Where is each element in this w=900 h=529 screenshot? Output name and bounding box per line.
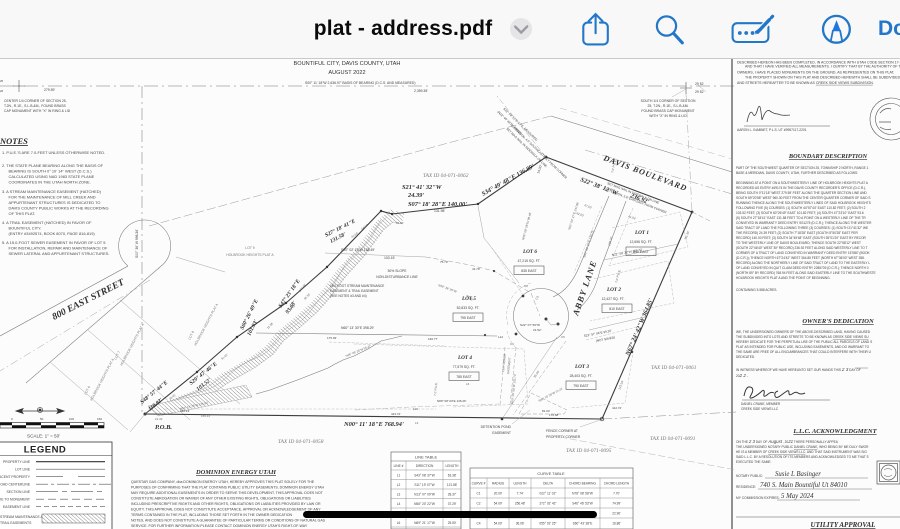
svg-text:3. A STREAM MAINTENANCE EASE: 3. A STREAM MAINTENANCE EASEMENT (HATCHE… <box>2 189 102 194</box>
svg-text:74.99': 74.99' <box>612 502 621 506</box>
svg-text:77,579 SQ. FT.: 77,579 SQ. FT. <box>453 365 476 369</box>
svg-text:1. P.U.E.'S ARE 7.0-FEET UNL: 1. P.U.E.'S ARE 7.0-FEET UNLESS OTHERWIS… <box>2 150 105 155</box>
svg-text:N13° 07' 09"W: N13° 07' 09"W <box>414 493 435 497</box>
svg-text:LOT 6: LOT 6 <box>522 249 537 255</box>
svg-text:L3: L3 <box>415 421 419 425</box>
svg-text:C8: C8 <box>524 284 528 288</box>
svg-text:DAVIS COUNTY PUBLIC WORKS AT T: DAVIS COUNTY PUBLIC WORKS AT THE RECORDI… <box>9 206 109 211</box>
svg-text:CAP MONUMENT WITH "X" IN RING: CAP MONUMENT WITH "X" IN RING & LID <box>4 109 71 113</box>
svg-text:54.00': 54.00' <box>494 522 503 526</box>
svg-text:COORDINATES IN THE UTAH NORTH: COORDINATES IN THE UTAH NORTH ZONE. <box>9 180 91 185</box>
svg-text:QUESTAR GAS COMPANY, dba DOMIN: QUESTAR GAS COMPANY, dba DOMINION ENERGY… <box>131 480 315 484</box>
svg-text:121.58': 121.58' <box>447 483 458 487</box>
svg-text:CHORD BEARING: CHORD BEARING <box>569 482 596 486</box>
svg-text:AND THAT I HAVE VERIFIED ALL M: AND THAT I HAVE VERIFIED ALL MEASUREMENT… <box>745 65 900 69</box>
svg-text:S11° 19' 07"W: S11° 19' 07"W <box>414 483 434 487</box>
svg-text:CORNER OF A TRACT OF LAND CONV: CORNER OF A TRACT OF LAND CONVEYED IN WA… <box>736 251 871 255</box>
svg-text:S00° 36' W 996.36': S00° 36' W 996.36' <box>135 229 139 258</box>
svg-text:7.74': 7.74' <box>517 492 524 496</box>
svg-text:5. A 15.0-FOOT SEWER EASEMEN: 5. A 15.0-FOOT SEWER EASEMENT IN FAVOR O… <box>2 240 106 245</box>
svg-text:21.41': 21.41' <box>155 417 163 421</box>
svg-text:NON-DISTURBANCE LINE: NON-DISTURBANCE LINE <box>376 275 418 279</box>
svg-text:S07° 18' 28"E 140.00': S07° 18' 28"E 140.00' <box>408 201 467 208</box>
svg-text:52,833 SQ. FT.: 52,833 SQ. FT. <box>457 306 480 310</box>
svg-text:L6: L6 <box>466 382 470 386</box>
svg-text:LOT LINE: LOT LINE <box>15 468 31 472</box>
svg-text:OF LAND CONVEYED IN QUIT CLAIM: OF LAND CONVEYED IN QUIT CLAIM DEED ENTR… <box>736 266 869 270</box>
svg-text:L4: L4 <box>397 502 401 506</box>
svg-text:INCLUDING PRESCRIPTIVE RIGHTS: INCLUDING PRESCRIPTIVE RIGHTS AND OTHER … <box>131 502 321 506</box>
svg-text:TAX ID 04-071-0091: TAX ID 04-071-0091 <box>650 436 696 442</box>
svg-text:54.00': 54.00' <box>494 502 503 506</box>
svg-text:RESIDENCE:: RESIDENCE: <box>736 485 756 489</box>
svg-text:790 EAST: 790 EAST <box>573 384 588 388</box>
svg-text:DEDICATED.: DEDICATED. <box>736 355 755 359</box>
svg-text:AUGUST 2022: AUGUST 2022 <box>328 70 365 76</box>
svg-text:L6: L6 <box>397 521 401 525</box>
svg-text:HE IS A MEMBER OF CREEK SIDE V: HE IS A MEMBER OF CREEK SIDE VIEWS LLC, … <box>736 450 867 454</box>
svg-text:81.04': 81.04' <box>542 409 551 413</box>
svg-text:PLAT AS INTENDED FOR PUBLIC US: PLAT AS INTENDED FOR PUBLIC USE, INCLUDI… <box>736 345 870 349</box>
svg-text:840 EAST: 840 EAST <box>633 250 648 254</box>
svg-text:DOMINION ENERGY UTAH: DOMINION ENERGY UTAH <box>195 469 277 476</box>
svg-text:FOR THE MAINTENANCE OF MILL CR: FOR THE MAINTENANCE OF MILL CREEK AND <box>9 195 96 200</box>
svg-text:DIRECTION: DIRECTION <box>416 464 434 468</box>
svg-text:150: 150 <box>97 417 102 421</box>
svg-text:156.13': 156.13' <box>180 409 190 413</box>
svg-text:CENTER 1/4 CORNER OF SECTION 2: CENTER 1/4 CORNER OF SECTION 25, <box>4 99 67 103</box>
svg-text:RECORD) ALONG THE NORTHERLY LI: RECORD) ALONG THE NORTHERLY LINE OF SAID… <box>736 261 870 265</box>
svg-text:EXECUTED THE SAME.: EXECUTED THE SAME. <box>736 460 771 464</box>
svg-text:(ENTRY #3492574, BOOK 8070, PA: (ENTRY #3492574, BOOK 8070, PAGE 816-819… <box>9 231 96 236</box>
svg-text:175.93': 175.93' <box>327 336 337 340</box>
svg-text:30% SLOPE: 30% SLOPE <box>387 269 407 273</box>
svg-text:MAY REQUIRE ADDITIONAL EASEMEN: MAY REQUIRE ADDITIONAL EASEMENTS IN ORDE… <box>131 491 324 495</box>
svg-text:N89° 08' 03"E 136.26': N89° 08' 03"E 136.26' <box>437 399 467 403</box>
svg-text:LOT 2: LOT 2 <box>606 287 621 293</box>
svg-text:TAX ID 04-071-0095: TAX ID 04-071-0095 <box>566 448 612 454</box>
svg-text:N56° 20' 22"W: N56° 20' 22"W <box>414 502 435 506</box>
svg-text:EQUITY. THIS APPROVAL DOES NOT: EQUITY. THIS APPROVAL DOES NOT CONSTITUT… <box>131 508 321 512</box>
svg-text:2. THE STATE PLANE BEARING A: 2. THE STATE PLANE BEARING ALONG THE BAS… <box>2 163 104 168</box>
svg-text:7.70': 7.70' <box>613 492 620 496</box>
svg-text:785 EAST: 785 EAST <box>456 375 471 379</box>
svg-text:LOT 1: LOT 1 <box>634 230 649 236</box>
svg-text:ROAD CENTERLINE: ROAD CENTERLINE <box>0 483 31 487</box>
svg-text:RECORDED AS ENTRY #49174 IN TH: RECORDED AS ENTRY #49174 IN THE DAVIS CO… <box>736 186 866 190</box>
svg-text:26: 26 <box>0 89 4 93</box>
svg-text:413.72': 413.72' <box>391 412 401 416</box>
svg-text:26.00': 26.00' <box>396 221 404 225</box>
svg-text:C5: C5 <box>561 335 565 339</box>
svg-text:THE RECORD) 24.39 FEET; (2) SO: THE RECORD) 24.39 FEET; (2) SOUTH 7°18'2… <box>736 231 858 235</box>
svg-text:(SOUTH 22°46'40" WEST BY RECOR: (SOUTH 22°46'40" WEST BY RECORD) 236.92 … <box>736 246 868 250</box>
svg-text:AND STREETS HEREAFTER TO BE KN: AND STREETS HEREAFTER TO BE KNOWN AS CRE… <box>737 81 874 85</box>
svg-text:SCALE: 1" = 50': SCALE: 1" = 50' <box>27 434 60 439</box>
svg-text:THE UNDERSIGNED NOTARY PUBLIC: THE UNDERSIGNED NOTARY PUBLIC DANIEL CRA… <box>736 445 869 449</box>
svg-text:DETENTION POND: DETENTION POND <box>481 425 512 429</box>
svg-text:UTILITY APPROVAL: UTILITY APPROVAL <box>811 521 876 529</box>
svg-text:TERMS CONTAINED IN THE PLAT, I: TERMS CONTAINED IN THE PLAT, INCLUDING T… <box>131 513 293 517</box>
svg-text:S60° 43' 38"E: S60° 43' 38"E <box>573 522 593 526</box>
svg-text:HOLBROOK HEIGHTS PLAT A: HOLBROOK HEIGHTS PLAT A <box>226 253 274 257</box>
svg-text:HOLBROOK HEIGHTS PLAT A AND TH: HOLBROOK HEIGHTS PLAT A AND THE POINT OF… <box>736 276 831 280</box>
svg-text:S43° 08' 37"W: S43° 08' 37"W <box>414 474 435 478</box>
svg-text:25: 25 <box>0 79 4 83</box>
svg-text:29 52: 29 52 <box>695 82 704 86</box>
svg-text:S22° 07' 56"W: S22° 07' 56"W <box>520 323 540 327</box>
svg-text:L10: L10 <box>413 407 418 411</box>
svg-text:SOUTH 1/4 CORNER OF SECTION: SOUTH 1/4 CORNER OF SECTION <box>641 99 696 103</box>
svg-text:37.29': 37.29' <box>448 502 457 506</box>
svg-text:25, T.2N., R.1E., S.L.B.&M.: 25, T.2N., R.1E., S.L.B.&M. <box>647 104 688 108</box>
svg-text:SERVICE. FOR FURTHER INFORMATI: SERVICE. FOR FURTHER INFORMATION PLEASE … <box>131 524 308 528</box>
svg-text:740 S. Main Bountiful Ut 84010: 740 S. Main Bountiful Ut 84010 <box>760 482 848 489</box>
svg-text:160.77': 160.77' <box>428 337 438 341</box>
svg-text:055° 02' 25": 055° 02' 25" <box>539 522 556 526</box>
svg-text:100: 100 <box>69 417 74 421</box>
svg-text:C4: C4 <box>510 342 514 346</box>
svg-text:835 EAST: 835 EAST <box>521 269 536 273</box>
svg-text:L.L.C. ACKNOWLEDGMENT: L.L.C. ACKNOWLEDGMENT <box>792 428 877 435</box>
svg-text:279.59': 279.59' <box>44 88 55 92</box>
svg-text:STREAM MAINTENANCE AND: STREAM MAINTENANCE AND <box>0 515 48 519</box>
svg-text:16.86': 16.86' <box>612 522 621 526</box>
svg-text:(NORTH 89° BY RECORD) 768.94 F: (NORTH 89° BY RECORD) 768.94 FEET ALONG … <box>736 271 876 275</box>
svg-text:412.72': 412.72' <box>612 406 622 410</box>
svg-text:SAID TRACT OF LAND THE FOLLOWI: SAID TRACT OF LAND THE FOLLOWING THREE (… <box>736 226 868 230</box>
svg-text:810 EAST: 810 EAST <box>609 307 624 311</box>
svg-text:CONSTITUTE ABROGATION OR WAIVE: CONSTITUTE ABROGATION OR WAIVER OF ANY O… <box>131 497 311 501</box>
svg-text:28,403 SQ. FT.: 28,403 SQ. FT. <box>570 374 593 378</box>
svg-text:22.90': 22.90' <box>612 512 621 516</box>
svg-text:36.06': 36.06' <box>516 522 525 526</box>
svg-text:LOT 9: LOT 9 <box>245 246 254 250</box>
svg-text:NOTES: NOTES <box>0 136 28 146</box>
svg-text:S46° 46' 53"W: S46° 46' 53"W <box>572 502 593 506</box>
svg-text:LOT 4: LOT 4 <box>457 355 472 361</box>
svg-text:IN WITNESS WHEREOF WE HAVE HER: IN WITNESS WHEREOF WE HAVE HEREUNTO SET … <box>736 367 861 372</box>
svg-text:NOTARY PUBLIC:: NOTARY PUBLIC: <box>736 474 763 478</box>
svg-text:OWNERS, I HAVE PLACED MONUMENT: OWNERS, I HAVE PLACED MONUMENTS ON THE G… <box>737 71 895 75</box>
svg-text:CALCULATED USING NAD 1983 STAT: CALCULATED USING NAD 1983 STATE PLANE <box>9 174 95 179</box>
svg-text:L1: L1 <box>397 474 401 478</box>
svg-text:(5) SOUTH 27°18'41" EAST 131.5: (5) SOUTH 27°18'41" EAST 131.58 FEET TO … <box>736 216 866 220</box>
svg-text:FOLLOWING FIVE (5) COURSES: (1: FOLLOWING FIVE (5) COURSES: (1) SOUTH 44… <box>736 206 866 210</box>
svg-text:AARON L. INABNET, P.L.S. UT #: AARON L. INABNET, P.L.S. UT #9957117-220… <box>737 128 807 132</box>
svg-text:TRAIL EASEMENTS: TRAIL EASEMENTS <box>0 521 32 525</box>
svg-text:EASEMENT LINE: EASEMENT LINE <box>3 505 31 509</box>
svg-text:C1: C1 <box>476 492 480 496</box>
svg-text:SECTION LINE: SECTION LINE <box>6 490 30 494</box>
svg-text:CURVE #: CURVE # <box>472 482 486 486</box>
svg-text:PROPERTY CORNER: PROPERTY CORNER <box>546 435 581 439</box>
svg-text:N60° 13' 30"E 398.29': N60° 13' 30"E 398.29' <box>341 326 374 330</box>
svg-text:TO THE WESTERLY LINE OF DAVIS: TO THE WESTERLY LINE OF DAVIS BOULEVARD;… <box>736 241 861 245</box>
svg-text:S21° 41' 32"W: S21° 41' 32"W <box>402 184 443 191</box>
svg-text:103.52 FEET; (3) SOUTH 60°26'4: 103.52 FEET; (3) SOUTH 60°26'49" EAST 10… <box>736 211 864 215</box>
svg-text:SAID L.L.C. BY A RESOLUTION OF: SAID L.L.C. BY A RESOLUTION OF ITS MEMBE… <box>736 455 869 459</box>
svg-text:CREEK SIDE VIEWS LLC: CREEK SIDE VIEWS LLC <box>741 407 779 411</box>
svg-text:APPURTENANT STRUCTURES IS DEDI: APPURTENANT STRUCTURES IS DEDICATED TO <box>9 200 101 205</box>
svg-text:LOT 3: LOT 3 <box>574 364 589 370</box>
svg-text:50: 50 <box>40 417 44 421</box>
svg-text:BOUNTIFUL CITY, DAVIS COUNTY,: BOUNTIFUL CITY, DAVIS COUNTY, UTAH <box>294 61 401 67</box>
svg-text:(SEE NOTES #3 AND #4): (SEE NOTES #3 AND #4) <box>330 294 367 298</box>
svg-text:THE PROPERTY SHOWN ON THIS PLA: THE PROPERTY SHOWN ON THIS PLAT AND DESC… <box>745 76 900 80</box>
svg-text:N69° 21' 17"W: N69° 21' 17"W <box>414 521 435 525</box>
svg-text:CURVE TABLE: CURVE TABLE <box>537 471 565 476</box>
svg-text:EASEMENT: EASEMENT <box>492 431 511 435</box>
svg-text:L3: L3 <box>397 493 401 497</box>
svg-text:ON THE 2 3 DAY OF August: ON THE 2 3 DAY OF August , 2021 THERE PE… <box>736 439 839 444</box>
svg-text:12,427 SQ. FT.: 12,427 SQ. FT. <box>602 297 625 301</box>
svg-text:41.79': 41.79' <box>472 267 481 271</box>
svg-text:TAX ID 04-071-0062: TAX ID 04-071-0062 <box>423 173 469 179</box>
svg-text:272° 02' 42": 272° 02' 42" <box>539 502 556 506</box>
svg-text:Susie L Basinger: Susie L Basinger <box>775 471 821 478</box>
svg-text:T.2N., R.1E., S.L.B.&M., FOUND: T.2N., R.1E., S.L.B.&M., FOUND BRASS <box>4 104 67 108</box>
svg-text:FOR INSTALLATION, REPAIR AND M: FOR INSTALLATION, REPAIR AND MAINTENANCE… <box>9 246 108 251</box>
svg-text:(D.C.R.)); THENCE NORTH 67°24': (D.C.R.)); THENCE NORTH 67°24'42" WEST 3… <box>736 256 865 260</box>
svg-text:47,215 SQ. FT.: 47,215 SQ. FT. <box>518 259 541 263</box>
svg-text:HEREBY DEDICATE FOR THE PERPET: HEREBY DEDICATE FOR THE PERPETUAL USE OF… <box>736 340 872 344</box>
svg-text:PROPERTY LINE: PROPERTY LINE <box>3 460 31 464</box>
svg-text:DANIEL CRANE, MEMBER: DANIEL CRANE, MEMBER <box>741 402 781 406</box>
svg-text:WE, THE UNDERSIGNED OWNERS OF: WE, THE UNDERSIGNED OWNERS OF THE ABOVE-… <box>736 330 871 334</box>
svg-text:THE SUBDIVIDED INTO LOTS AND S: THE SUBDIVIDED INTO LOTS AND STREETS TO … <box>736 335 869 339</box>
svg-text:795 EAST: 795 EAST <box>460 316 475 320</box>
svg-text:LENGTH: LENGTH <box>514 482 528 486</box>
svg-text:28.37': 28.37' <box>448 493 457 497</box>
svg-text:24.39': 24.39' <box>407 192 424 199</box>
svg-text:WITH "X" IN RING & LID: WITH "X" IN RING & LID <box>649 114 687 118</box>
svg-text:CONTAINING 5.588 ACRES.: CONTAINING 5.588 ACRES. <box>736 288 777 292</box>
svg-text:EASEMENT & TRAIL EASEMENT: EASEMENT & TRAIL EASEMENT <box>330 289 379 293</box>
svg-text:NOTES, AND DOES NOT CONSTITUTE: NOTES, AND DOES NOT CONSTITUTE A GUARANT… <box>131 519 326 523</box>
svg-text:BOUNTIFUL CITY.: BOUNTIFUL CITY. <box>9 226 42 231</box>
svg-text:C4: C4 <box>476 522 480 526</box>
svg-text:022° 11' 02": 022° 11' 02" <box>540 492 557 496</box>
svg-text:TAX ID 04-071-0061: TAX ID 04-071-0061 <box>651 365 697 371</box>
svg-text:S00° 02' 16"W 188.49': S00° 02' 16"W 188.49' <box>341 248 375 252</box>
svg-text:75.79': 75.79' <box>440 260 449 264</box>
svg-text:LINE #: LINE # <box>394 464 404 468</box>
svg-text:N00° 11' 18"E 768.94': N00° 11' 18"E 768.94' <box>343 421 404 428</box>
svg-text:ADJACENT PROPERTY: ADJACENT PROPERTY <box>0 475 31 479</box>
svg-text:29 52: 29 52 <box>695 90 704 94</box>
svg-text:OF THIS PLAT.: OF THIS PLAT. <box>9 211 36 216</box>
svg-text:LEGEND: LEGEND <box>24 445 67 456</box>
svg-text:FENCE CORNER AT: FENCE CORNER AT <box>546 429 578 433</box>
svg-text:103.15': 103.15' <box>384 256 395 260</box>
svg-text:12,656 SQ. FT.: 12,656 SQ. FT. <box>630 240 653 244</box>
svg-text:CONVEYED IN WARRANTY DEED ENTR: CONVEYED IN WARRANTY DEED ENTRY SS1275 (… <box>736 221 872 225</box>
svg-text:BEING SOUTH 0°11'18" WEST 279.: BEING SOUTH 0°11'18" WEST 279.59' FEET A… <box>736 191 867 195</box>
svg-text:BOUNDARY DESCRIPTION: BOUNDARY DESCRIPTION <box>788 153 868 160</box>
svg-text:C2: C2 <box>476 502 480 506</box>
svg-text:5 May 2024: 5 May 2024 <box>781 493 814 500</box>
svg-text:170.68': 170.68' <box>549 413 559 417</box>
svg-text:15.0-FOOT STREAM MAINTENANCE: 15.0-FOOT STREAM MAINTENANCE <box>330 284 384 288</box>
svg-text:TIE TO MONUMENT: TIE TO MONUMENT <box>0 498 30 502</box>
svg-text:L2: L2 <box>397 483 401 487</box>
svg-text:25.50': 25.50' <box>448 521 457 525</box>
svg-text:RADIUS: RADIUS <box>492 482 504 486</box>
svg-text:CHORD LENGTH: CHORD LENGTH <box>604 482 630 486</box>
svg-text:BEARING IS SOUTH 0° 10' 14" WE: BEARING IS SOUTH 0° 10' 14" WEST (D.C.S.… <box>9 169 93 174</box>
svg-text:131.98': 131.98' <box>434 209 445 213</box>
svg-text:THE SAME ARE FREE OF ALL ENCUM: THE SAME ARE FREE OF ALL ENCUMBRANCES TH… <box>736 350 872 354</box>
svg-text:TAX ID 04-071-0058: TAX ID 04-071-0058 <box>278 439 324 445</box>
svg-text:PURPOSES OF CONFIRMING THAT TH: PURPOSES OF CONFIRMING THAT THE PLAT CON… <box>131 486 325 490</box>
svg-text:SEWER LATERAL AND APPURTENANT: SEWER LATERAL AND APPURTENANT STRUCTURES… <box>9 251 110 256</box>
svg-text:LENGTH: LENGTH <box>446 464 460 468</box>
svg-text:4. A TRAIL EASEMENT (HATCHED: 4. A TRAIL EASEMENT (HATCHED) IN FAVOR O… <box>2 220 92 225</box>
svg-text:RECORD) 140.00 FEET; (3) SOUTH: RECORD) 140.00 FEET; (3) SOUTH 34°49'48"… <box>736 236 867 240</box>
svg-text:SOUTH 89°20'58" WEST 960.30 FE: SOUTH 89°20'58" WEST 960.30 FEET FROM TH… <box>736 196 871 200</box>
svg-text:L12: L12 <box>498 335 503 339</box>
svg-text:RUNNING THENCE ALONG THE SOUTH: RUNNING THENCE ALONG THE SOUTHWESTERLY L… <box>736 201 871 205</box>
svg-text:PART OF THE SOUTHWEST QUARTER: PART OF THE SOUTHWEST QUARTER OF SECTION… <box>736 166 869 170</box>
svg-text:BEGINNING AT A POINT ON A SOUT: BEGINNING AT A POINT ON A SOUTHWESTERLY … <box>736 181 869 185</box>
svg-text:63.38': 63.38' <box>448 474 457 478</box>
svg-text:P.O.B.: P.O.B. <box>155 424 172 431</box>
svg-text:S00° 11' 18"W 2,636.97' BASI: S00° 11' 18"W 2,636.97' BASIS OF BEARING… <box>305 81 415 85</box>
svg-text:DELTA: DELTA <box>543 482 554 486</box>
svg-text:256.48': 256.48' <box>515 502 526 506</box>
svg-text:2,359.38': 2,359.38' <box>414 89 428 93</box>
svg-text:LINE TABLE: LINE TABLE <box>415 455 438 460</box>
svg-text:202 2 .: 202 2 . <box>736 373 749 378</box>
svg-text:20.00': 20.00' <box>494 492 503 496</box>
svg-text:BASE & MERIDIAN, DAVIS COUNTY,: BASE & MERIDIAN, DAVIS COUNTY, UTAH, FUR… <box>736 171 858 175</box>
svg-text:21.52': 21.52' <box>533 328 542 332</box>
svg-text:OWNER'S DEDICATION: OWNER'S DEDICATION <box>802 318 874 325</box>
svg-text:MY COMMISSION EXPIRES:: MY COMMISSION EXPIRES: <box>736 496 780 500</box>
svg-text:N78° 08' 58"W: N78° 08' 58"W <box>572 492 593 496</box>
